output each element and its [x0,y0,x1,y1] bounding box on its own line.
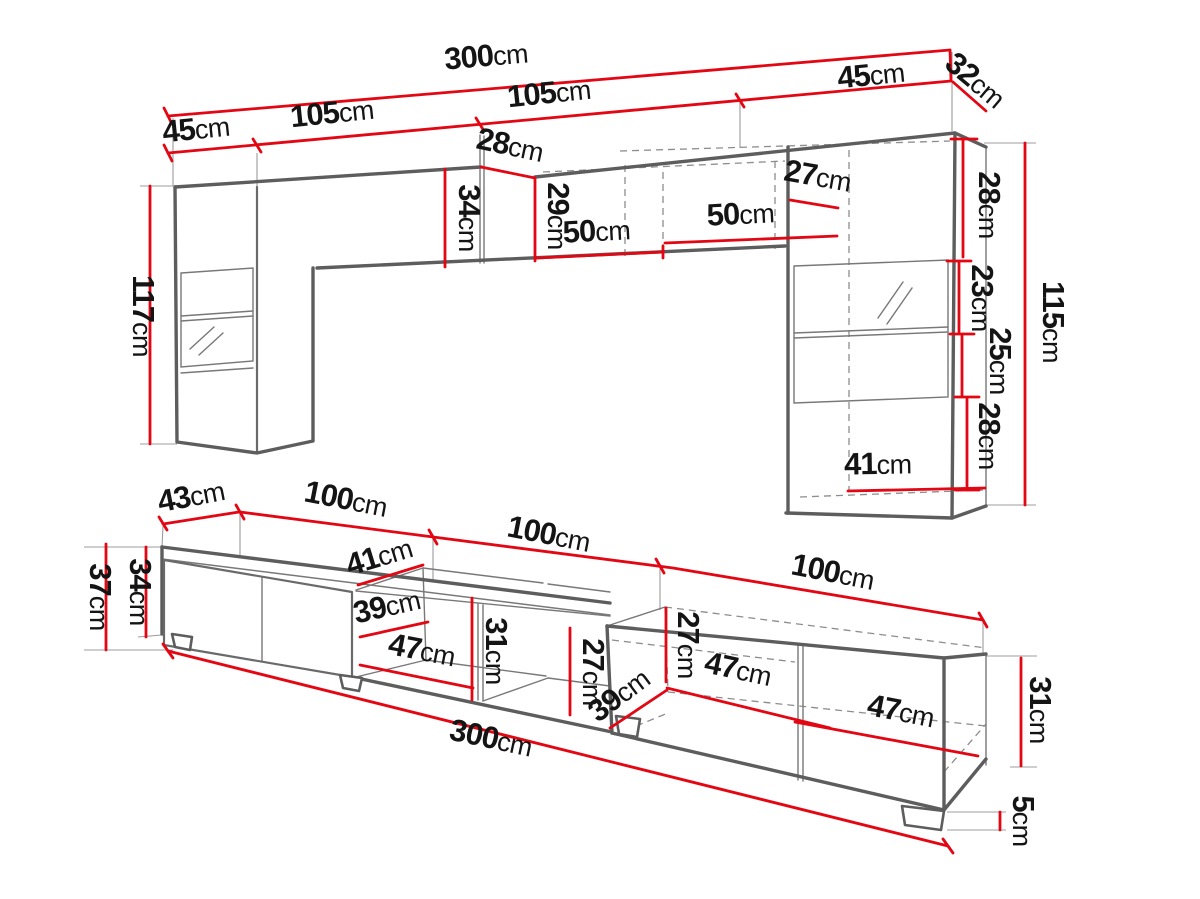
dim-wall-left-cabinet-height: 117cm [126,275,161,357]
dim-wall-glass-section-height: 23cm [965,264,1000,331]
dim-stand-compartment-width-3: 47cm [865,687,938,734]
dim-stand-opening-height-1: 31cm [479,617,514,684]
dim-wall-shelf-section-height: 25cm [983,327,1018,394]
dim-wall-shelf-width-1: 50cm [562,211,631,249]
dim-stand-end-height: 31cm [1023,676,1058,743]
bench-foot [902,806,944,830]
bench-foot [172,634,192,650]
dim-wall-section-width-1: 105cm [288,91,375,135]
dim-wall-section-width-2: 105cm [505,71,592,115]
dim-stand-compartment-width-2: 47cm [702,645,775,693]
dim-wall-front-shelf-height: 34cm [452,184,487,251]
dim-stand-section-width-2: 100cm [505,509,594,559]
dim-stand-carcass-height: 34cm [123,558,158,625]
dim-stand-section-width-1: 100cm [302,474,391,524]
dim-stand-opening-height-3: 27cm [671,611,706,678]
dim-stand-depth: 43cm [155,472,228,519]
dim-stand-overall-length: 300cm [447,712,536,764]
dim-wall-bottom-compartment-width: 41cm [844,445,912,481]
dim-stand-total-height: 37cm [83,563,118,630]
dim-wall-right-cabinet-width: 45cm [836,54,907,96]
dim-stand-foot-height: 5cm [1006,795,1041,846]
bench-foot [616,716,640,737]
dim-wall-right-top-compartment-height: 28cm [972,171,1007,238]
dim-wall-compartment-depth: 27cm [782,153,855,199]
dim-wall-overall-width: 300cm [443,34,529,76]
dim-stand-compartment-width-1: 47cm [386,626,459,673]
dim-wall-right-cabinet-height: 115cm [1036,281,1071,363]
furniture-dimension-diagram: 300cm 45cm 105cm 105cm 45cm 32cm 28cm 34… [0,0,1200,899]
diagram-svg: 300cm 45cm 105cm 105cm 45cm 32cm 28cm 34… [0,0,1200,899]
dim-wall-bottom-compartment-height: 28cm [972,402,1007,469]
bench-foot [340,675,362,691]
dim-wall-shelf-width-2: 50cm [706,194,775,232]
